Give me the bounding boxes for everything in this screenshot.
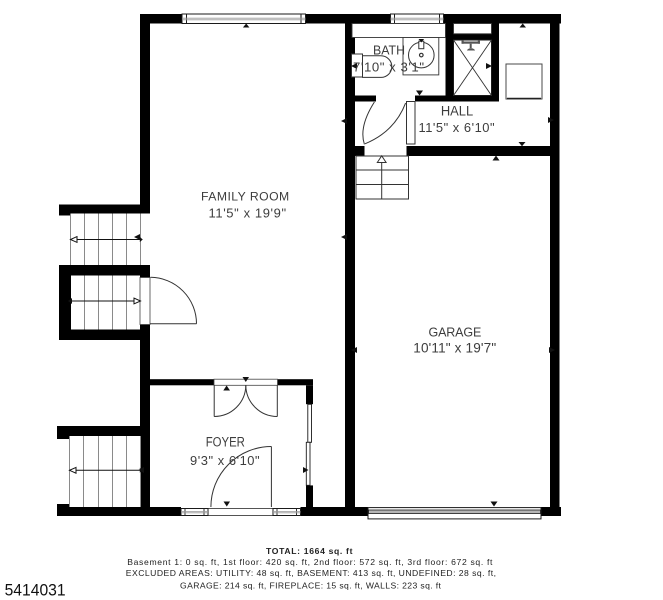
- svg-text:5414031: 5414031: [5, 580, 66, 599]
- svg-text:GARAGE: GARAGE: [429, 326, 482, 340]
- svg-text:EXCLUDED AREAS: UTILITY: 48 sq: EXCLUDED AREAS: UTILITY: 48 sq. ft, BASE…: [126, 568, 496, 578]
- svg-text:GARAGE: 214 sq. ft, FIREPLACE:: GARAGE: 214 sq. ft, FIREPLACE: 15 sq. ft…: [180, 580, 442, 590]
- svg-text:FAMILY ROOM: FAMILY ROOM: [201, 190, 289, 204]
- svg-text:Basement 1: 0 sq. ft, 1st floo: Basement 1: 0 sq. ft, 1st floor: 420 sq.…: [127, 557, 493, 567]
- svg-text:10'11" x 19'7": 10'11" x 19'7": [413, 340, 496, 355]
- svg-text:9'3" x 6'10": 9'3" x 6'10": [190, 453, 260, 468]
- svg-text:11'5" x 19'9": 11'5" x 19'9": [209, 206, 287, 221]
- svg-text:7'10" x 3'1": 7'10" x 3'1": [353, 59, 424, 74]
- svg-text:FOYER: FOYER: [206, 435, 245, 450]
- svg-text:HALL: HALL: [441, 104, 473, 119]
- svg-text:BATH: BATH: [373, 43, 405, 58]
- svg-text:TOTAL: 1664 sq. ft: TOTAL: 1664 sq. ft: [266, 546, 353, 556]
- svg-text:11'5" x 6'10": 11'5" x 6'10": [418, 120, 495, 135]
